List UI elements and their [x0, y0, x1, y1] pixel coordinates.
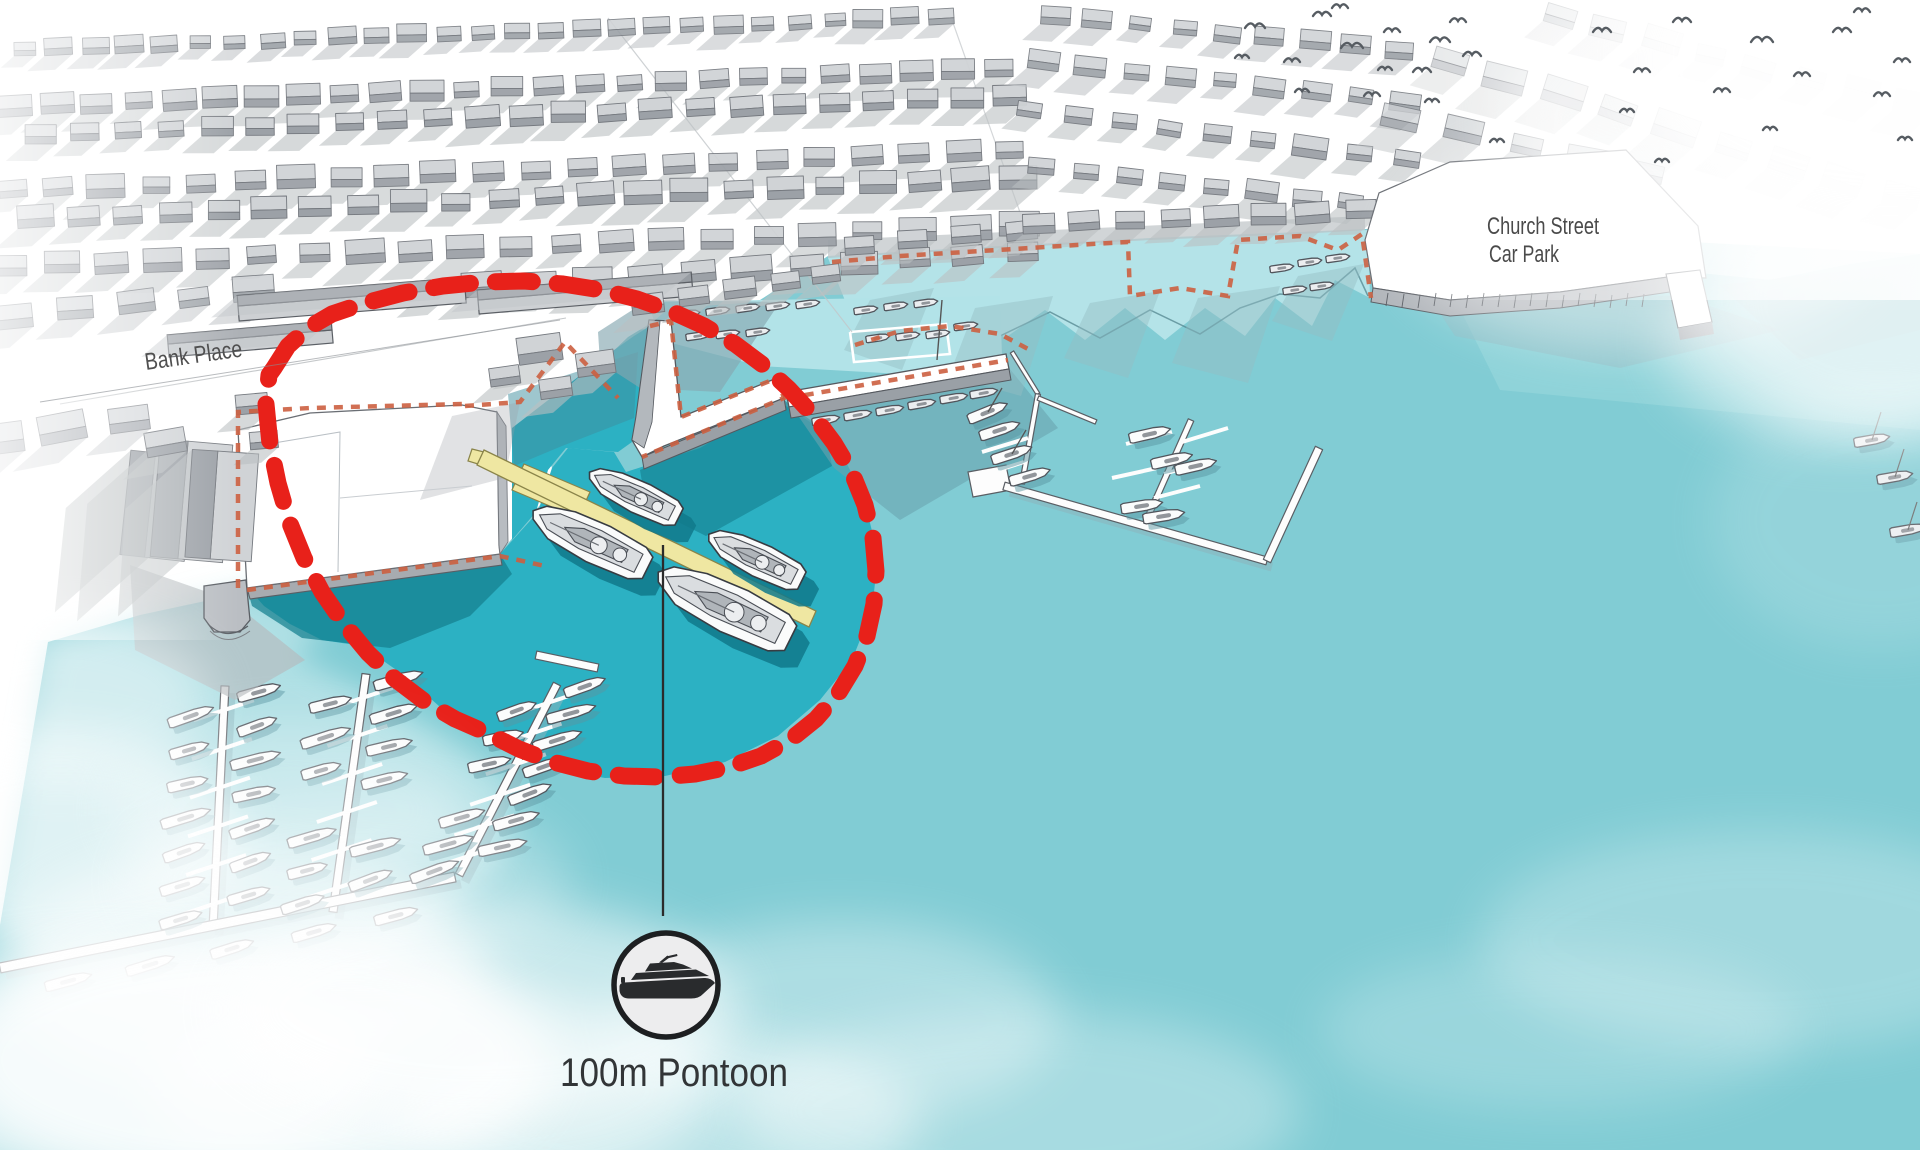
svg-text:100m Pontoon: 100m Pontoon: [560, 1051, 788, 1095]
svg-text:Car Park: Car Park: [1489, 241, 1560, 268]
svg-text:Church Street: Church Street: [1487, 213, 1599, 240]
